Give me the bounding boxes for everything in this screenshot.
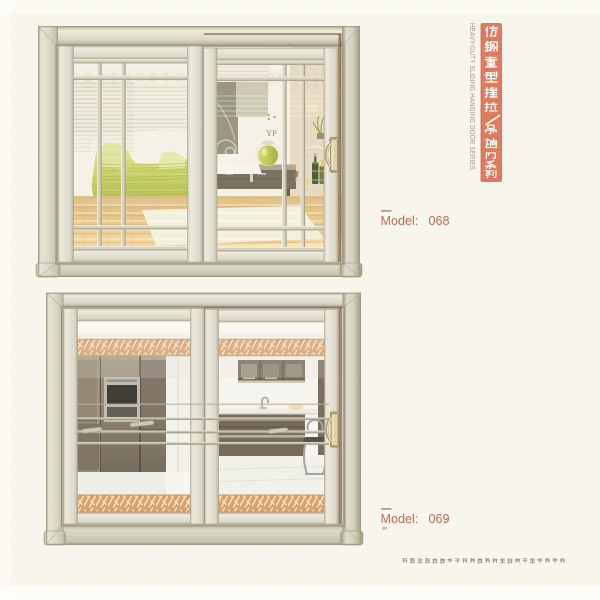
svg-text:068: 068 xyxy=(429,214,450,228)
svg-text:069: 069 xyxy=(429,512,450,526)
svg-text:HEAVY-DUTY SLIDING HANGING DOO: HEAVY-DUTY SLIDING HANGING DOOR SERIES xyxy=(468,23,477,170)
svg-text:Model:: Model: xyxy=(381,214,419,228)
svg-text:Model:: Model: xyxy=(381,512,419,526)
